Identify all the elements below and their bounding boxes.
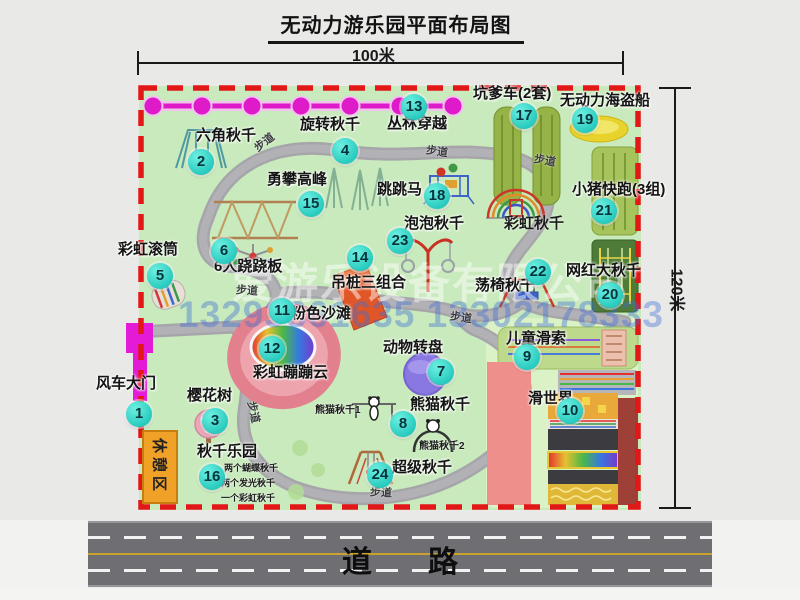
attraction-label-14: 吊桩三组合: [331, 275, 406, 292]
attraction-label-8: 熊猫秋千: [410, 397, 470, 414]
attraction-marker-21: 21: [591, 198, 617, 224]
map-canvas: [0, 0, 800, 600]
attraction-marker-23: 23: [387, 228, 413, 254]
attraction-marker-20: 20: [597, 282, 623, 308]
attraction-marker-9: 9: [514, 344, 540, 370]
attraction-label-17: 坑爹车(2套): [473, 86, 551, 103]
extra-label-3: 两个蝴蝶秋千: [224, 461, 278, 474]
attraction-label-21: 小猪快跑(3组): [572, 182, 665, 199]
attraction-marker-14: 14: [347, 245, 373, 271]
attraction-marker-12: 12: [259, 336, 285, 362]
attraction-marker-8: 8: [390, 411, 416, 437]
extra-label-1: 熊猫秋千1: [315, 401, 361, 416]
attraction-marker-11: 11: [269, 298, 295, 324]
attraction-label-22: 荡椅秋千: [475, 278, 535, 295]
attraction-label-18: 跳跳马: [377, 182, 422, 199]
attraction-marker-15: 15: [298, 191, 324, 217]
attraction-marker-7: 7: [428, 359, 454, 385]
attraction-marker-5: 5: [147, 263, 173, 289]
attraction-label-20: 网红大秋千: [566, 263, 641, 280]
extra-label-0: 彩虹秋千: [504, 212, 564, 233]
attraction-label-7: 动物转盘: [383, 340, 443, 357]
attraction-marker-19: 19: [572, 107, 598, 133]
attraction-label-9: 儿童滑索: [506, 331, 566, 348]
page-margin-bottom: [0, 588, 800, 600]
attraction-label-5: 彩虹滚筒: [118, 242, 178, 259]
road-label: 道路: [342, 537, 514, 581]
rest-area-box: 休憩区: [142, 430, 178, 504]
attraction-marker-3: 3: [202, 408, 228, 434]
attraction-marker-6: 6: [211, 238, 237, 264]
road: 道路: [88, 521, 712, 587]
attraction-label-23: 泡泡秋千: [404, 216, 464, 233]
attraction-marker-4: 4: [332, 138, 358, 164]
footpath-label-1: 步道: [425, 142, 449, 161]
attraction-label-19: 无动力海盗船: [560, 93, 650, 110]
footpath-label-5: 步道: [449, 308, 473, 327]
extra-label-5: 一个彩虹秋千: [221, 491, 275, 504]
attraction-marker-1: 1: [126, 401, 152, 427]
attraction-marker-17: 17: [511, 103, 537, 129]
attraction-label-16: 秋千乐园: [197, 444, 257, 461]
attraction-label-15: 勇攀高峰: [267, 172, 327, 189]
attraction-label-1: 风车大门: [96, 376, 156, 393]
attraction-marker-18: 18: [424, 183, 450, 209]
attraction-marker-13: 13: [401, 94, 427, 120]
footpath-label-3: 步道: [235, 281, 258, 298]
attraction-label-2: 六角秋千: [196, 128, 256, 145]
attraction-label-11: 粉色沙滩: [291, 306, 351, 323]
attraction-label-12: 彩虹蹦蹦云: [253, 365, 328, 382]
attraction-label-3: 樱花树: [187, 388, 232, 405]
slide-world-icon: [487, 362, 638, 505]
park-map-poster: 无动力游乐园平面布局图 100米 120米: [0, 0, 800, 600]
attraction-marker-2: 2: [188, 149, 214, 175]
attraction-marker-16: 16: [199, 464, 225, 490]
attraction-marker-22: 22: [525, 259, 551, 285]
attraction-marker-10: 10: [557, 398, 583, 424]
rest-area-label: 休憩区: [150, 438, 171, 495]
extra-label-2: 熊猫秋千2: [419, 437, 465, 452]
extra-label-4: 两个发光秋千: [221, 476, 275, 489]
attraction-label-24: 超级秋千: [392, 460, 452, 477]
attraction-marker-24: 24: [367, 462, 393, 488]
attraction-label-4: 旋转秋千: [300, 117, 360, 134]
